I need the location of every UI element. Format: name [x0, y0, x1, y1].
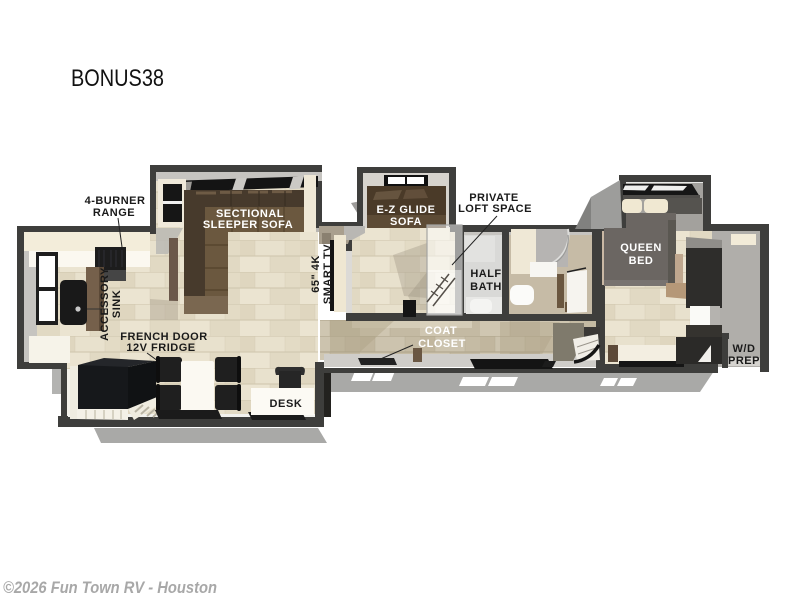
- svg-text:4-BURNER: 4-BURNER: [85, 195, 146, 207]
- svg-text:BED: BED: [629, 255, 654, 267]
- svg-text:©2026 Fun Town RV - Houston: ©2026 Fun Town RV - Houston: [3, 578, 217, 597]
- svg-text:W/D: W/D: [733, 343, 756, 355]
- svg-text:E-Z GLIDE: E-Z GLIDE: [377, 204, 436, 216]
- svg-text:COAT: COAT: [425, 325, 457, 337]
- svg-text:RANGE: RANGE: [93, 207, 135, 219]
- svg-text:65" 4K: 65" 4K: [310, 255, 322, 293]
- svg-text:CLOSET: CLOSET: [418, 338, 466, 350]
- svg-text:SLEEPER SOFA: SLEEPER SOFA: [203, 219, 293, 231]
- svg-text:BONUS38: BONUS38: [71, 65, 164, 92]
- svg-text:QUEEN: QUEEN: [620, 242, 662, 254]
- svg-text:SMART TV: SMART TV: [322, 244, 334, 304]
- svg-text:SOFA: SOFA: [390, 216, 422, 228]
- svg-text:HALF: HALF: [470, 268, 501, 280]
- svg-text:SINK: SINK: [111, 290, 123, 318]
- svg-text:LOFT SPACE: LOFT SPACE: [458, 203, 532, 215]
- svg-text:12V FRIDGE: 12V FRIDGE: [126, 342, 195, 354]
- svg-text:BATH: BATH: [470, 281, 502, 293]
- svg-text:ACCESSORY: ACCESSORY: [99, 267, 111, 341]
- svg-text:DESK: DESK: [270, 398, 303, 410]
- svg-text:PREP: PREP: [728, 355, 760, 367]
